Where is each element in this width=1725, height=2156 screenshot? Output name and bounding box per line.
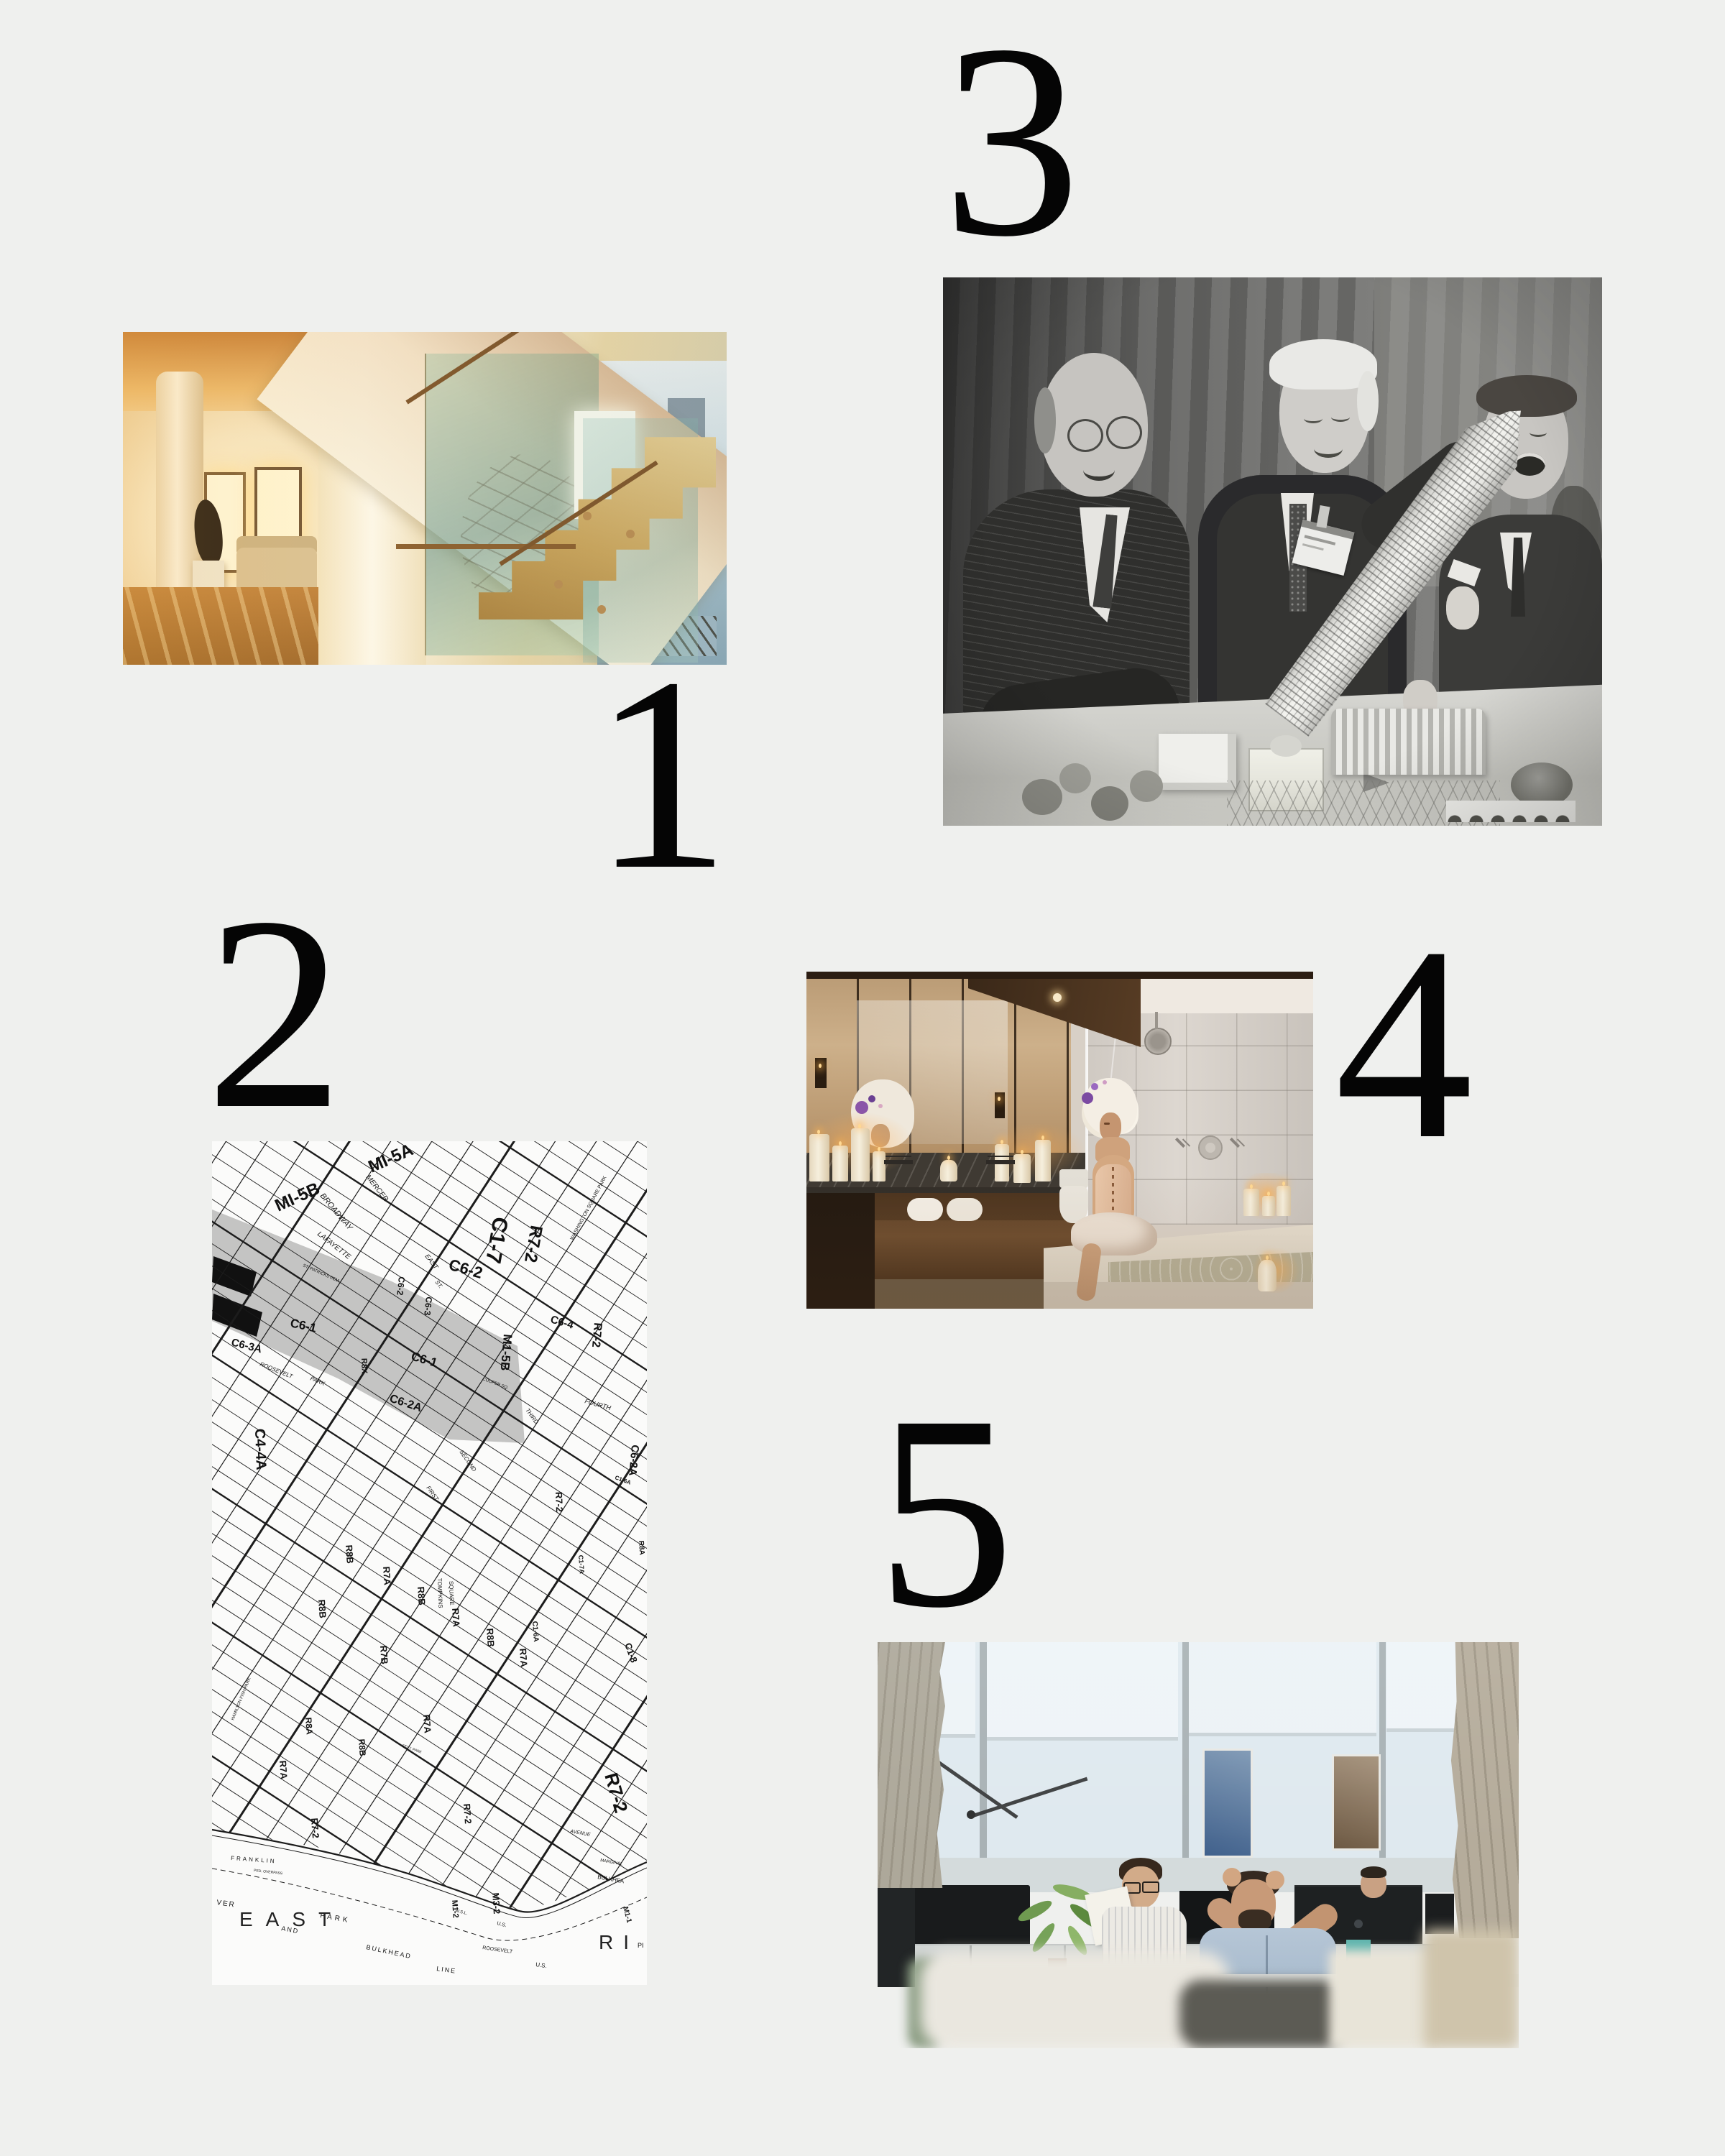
zoning-map-svg: MI-5AMI-5BBROADWAYMERCERLAFAYETTEEASTST.… <box>212 1141 647 1985</box>
map-label: C4-4A <box>252 1428 269 1470</box>
figure-2-number: 2 <box>206 875 344 1152</box>
map-label: C6-2 <box>395 1276 407 1296</box>
map-label: R7A <box>277 1760 290 1780</box>
photo-2-zoning-map: MI-5AMI-5BBROADWAYMERCERLAFAYETTEEASTST.… <box>212 1141 647 1985</box>
warm-light-overlay <box>123 332 727 665</box>
map-water-label: RI <box>599 1931 639 1953</box>
map-label: TOMPKINS <box>436 1578 443 1608</box>
photo-3-men-with-model <box>943 277 1602 826</box>
photo-4-bathroom <box>806 972 1313 1309</box>
bathroom-warm-overlay <box>806 972 1313 1309</box>
map-label: R8A <box>637 1540 645 1555</box>
map-label: R8X <box>359 1358 369 1374</box>
map-label: R7A <box>381 1566 393 1586</box>
map-label: C1-7A <box>577 1554 586 1574</box>
collage-page: 1 2 3 4 5 MI- <box>0 0 1725 2156</box>
figure-1-number: 1 <box>592 636 731 913</box>
map-label: R7A <box>517 1648 530 1668</box>
map-label: R7-2 <box>589 1322 604 1348</box>
map-label: R7-2 <box>309 1818 321 1838</box>
map-label: R8B <box>415 1586 428 1606</box>
figure-3-number: 3 <box>942 3 1081 280</box>
figure-4-number: 4 <box>1335 906 1473 1182</box>
map-label: C6-3 <box>422 1296 434 1317</box>
map-label: R8B <box>344 1544 356 1564</box>
map-water-label: EAST <box>239 1908 344 1930</box>
photo-1-penthouse-interior <box>123 332 727 665</box>
map-label: C1-6A <box>530 1621 540 1642</box>
map-label: SQUARE <box>448 1581 455 1606</box>
map-label: R7A <box>450 1608 462 1628</box>
bw-vignette <box>943 277 1602 826</box>
office-bright-overlay <box>878 1642 1519 2048</box>
photo-5-office <box>878 1642 1519 2048</box>
map-label: R8B <box>484 1628 497 1647</box>
map-label: M3-2 <box>490 1892 502 1915</box>
map-label: R7-2 <box>461 1803 474 1824</box>
map-label: R7B <box>378 1645 390 1664</box>
map-label: R8B <box>356 1738 368 1756</box>
map-label: R7A <box>421 1714 433 1734</box>
figure-5-number: 5 <box>876 1374 1015 1651</box>
map-label: R7-2 <box>553 1492 565 1513</box>
map-label: R8A <box>303 1717 315 1735</box>
map-label: R8B <box>316 1599 328 1618</box>
